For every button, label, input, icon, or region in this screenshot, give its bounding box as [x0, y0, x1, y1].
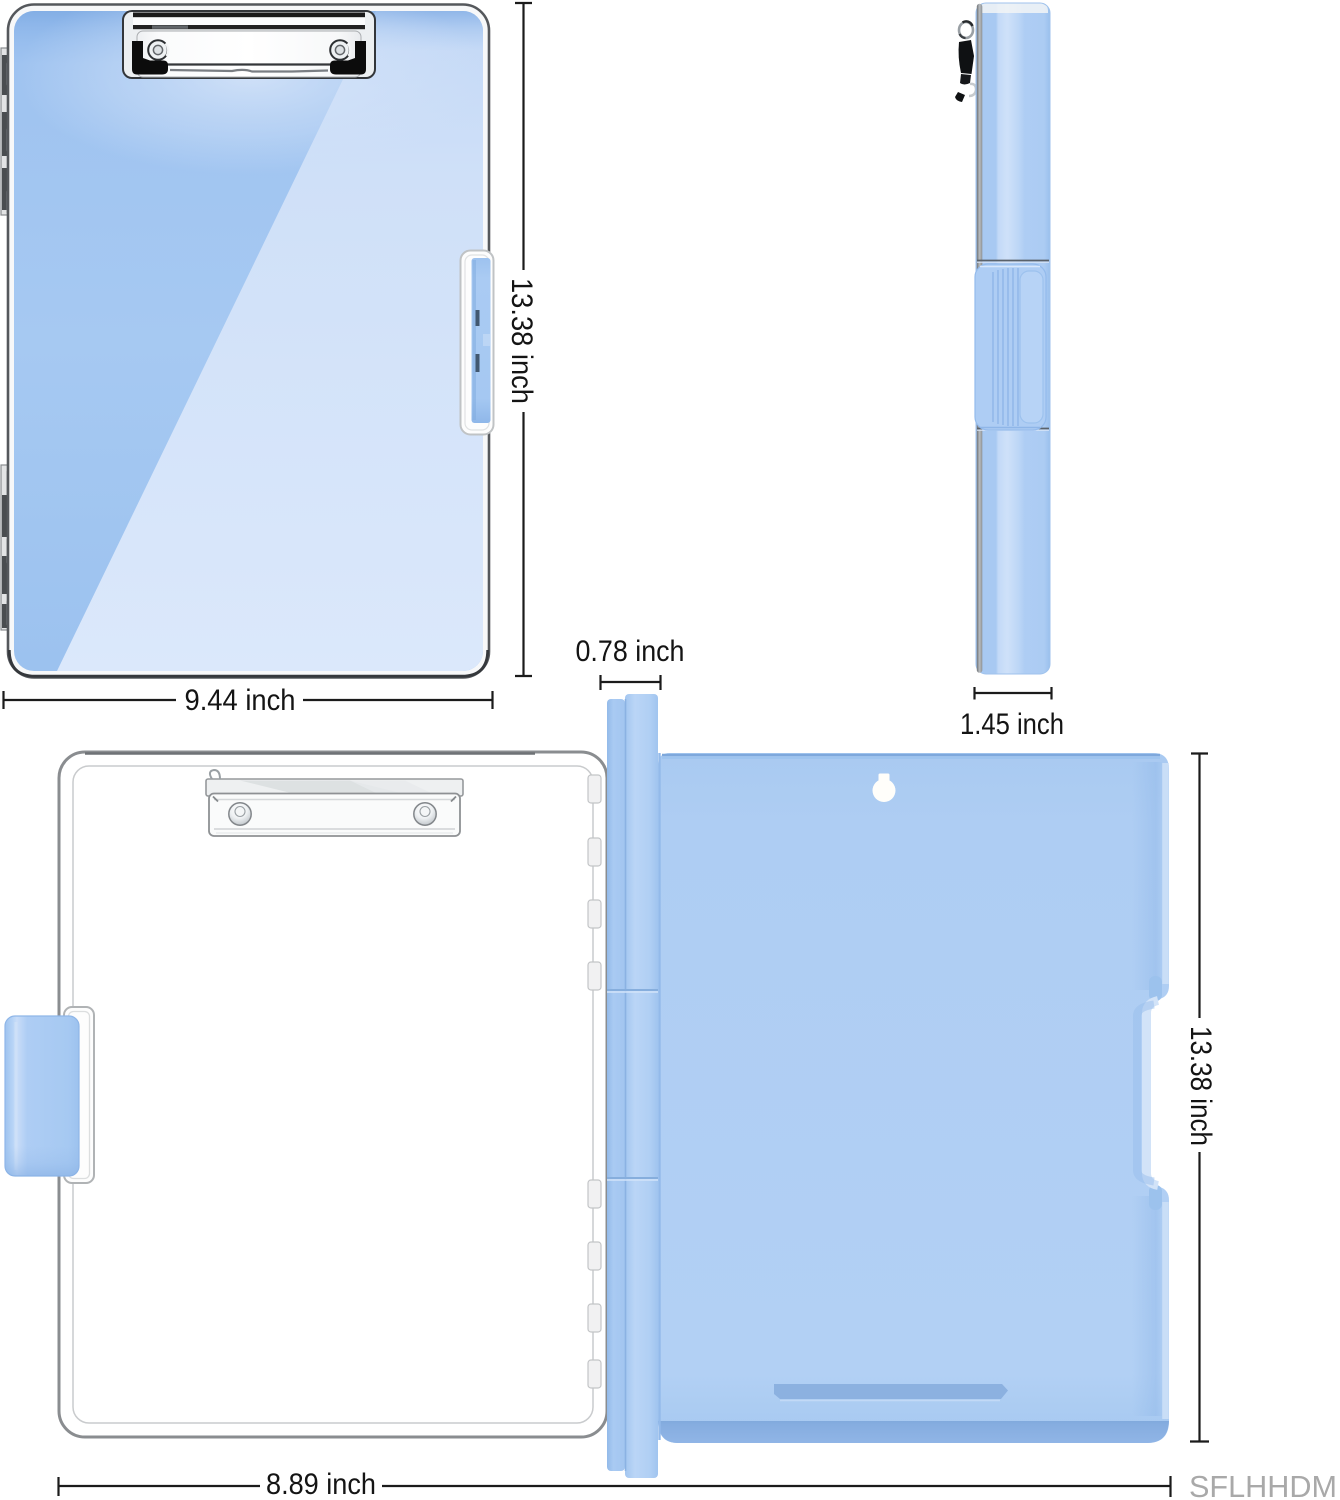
- svg-text:0.78 inch: 0.78 inch: [576, 635, 685, 668]
- svg-text:13.38 inch: 13.38 inch: [505, 278, 538, 404]
- svg-text:1.45 inch: 1.45 inch: [960, 708, 1064, 741]
- svg-text:13.38 inch: 13.38 inch: [1184, 1026, 1217, 1146]
- svg-text:8.89 inch: 8.89 inch: [266, 1468, 376, 1500]
- svg-text:SFLHHDM: SFLHHDM: [1189, 1469, 1337, 1500]
- svg-text:9.44 inch: 9.44 inch: [185, 684, 296, 717]
